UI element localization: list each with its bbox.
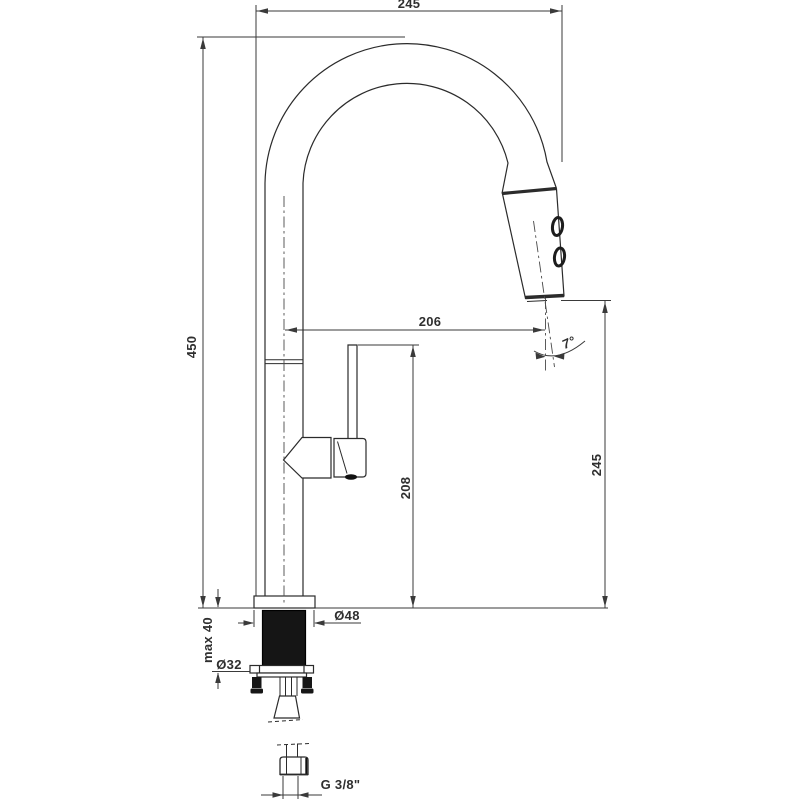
faucet-body: [250, 44, 566, 775]
connection-nut: [280, 757, 308, 775]
dim-label-handle-height: 208: [399, 458, 413, 518]
dim-label-total-height: 450: [185, 317, 199, 377]
dim-label-shank-diameter: Ø32: [204, 658, 254, 672]
hose-cone: [274, 696, 300, 718]
dim-label-outlet-height: 245: [590, 435, 604, 495]
drawing-canvas: 245 450 206 208 245 7° max 40 Ø32 Ø48 G …: [0, 0, 800, 800]
centerlines: [284, 196, 555, 606]
faucet-line-art: [0, 0, 800, 800]
lever-rod: [348, 345, 357, 438]
mounting-bolt-right: [303, 677, 313, 688]
mounting-bolt-left: [252, 677, 262, 688]
set-screw: [345, 474, 357, 480]
dim-label-top-width: 245: [379, 0, 439, 11]
dim-label-spout-reach: 206: [400, 315, 460, 329]
dim-label-connection-thread: G 3/8": [310, 778, 371, 792]
threaded-shank: [263, 611, 306, 668]
dim-label-escutcheon-diameter: Ø48: [322, 609, 372, 623]
base-flange: [254, 596, 315, 608]
handle-cone: [284, 438, 332, 479]
